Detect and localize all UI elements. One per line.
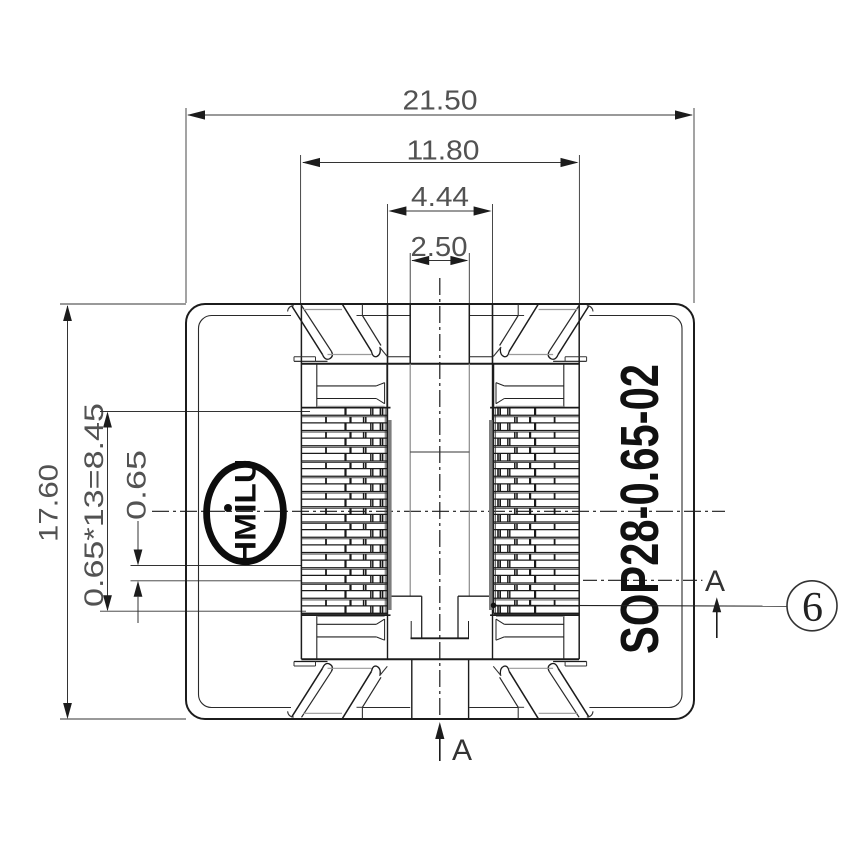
svg-text:11.80: 11.80 bbox=[407, 135, 480, 166]
svg-text:21.50: 21.50 bbox=[403, 85, 478, 116]
svg-text:6: 6 bbox=[802, 585, 823, 631]
svg-text:4.44: 4.44 bbox=[411, 181, 469, 212]
svg-text:17.60: 17.60 bbox=[34, 464, 64, 542]
svg-text:A: A bbox=[705, 565, 725, 598]
svg-text:0.65*13=8.45: 0.65*13=8.45 bbox=[79, 403, 109, 607]
svg-text:0.65: 0.65 bbox=[122, 450, 152, 520]
svg-text:HMILU: HMILU bbox=[230, 459, 263, 565]
svg-text:SOP28-0.65-02: SOP28-0.65-02 bbox=[610, 364, 670, 654]
svg-text:2.50: 2.50 bbox=[411, 231, 468, 262]
svg-text:A: A bbox=[452, 734, 472, 767]
